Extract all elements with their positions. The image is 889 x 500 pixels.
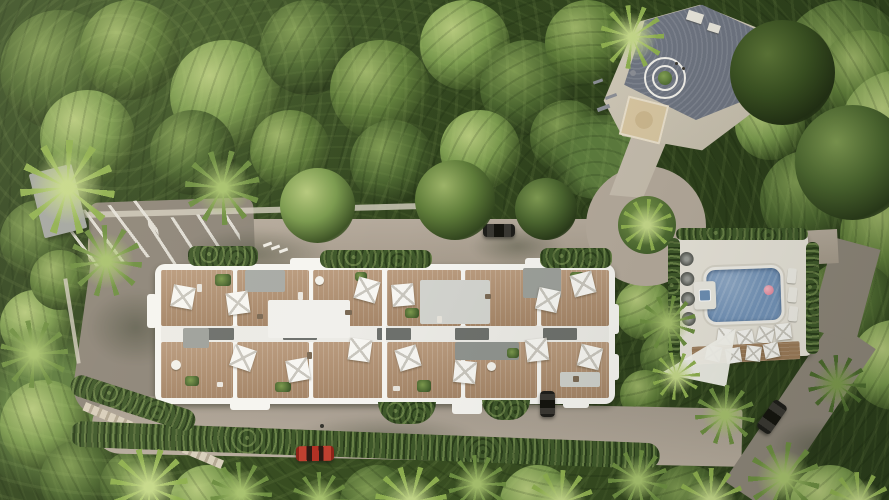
planter <box>507 348 519 358</box>
roof-edge-bump <box>563 398 589 408</box>
umbrella-icon <box>348 338 373 363</box>
sun-lounger <box>788 306 799 322</box>
sun-lounger <box>787 268 798 284</box>
pedestrian <box>675 62 678 65</box>
hedge <box>540 248 612 268</box>
tree-icon <box>730 20 835 125</box>
terrace-furniture <box>257 314 263 319</box>
hedge <box>188 246 258 266</box>
apartment-building-roof <box>155 264 615 404</box>
round-umbrella-icon <box>679 252 693 266</box>
jacuzzi-water <box>699 289 711 301</box>
umbrella-icon <box>226 291 251 316</box>
aerial-render-scene <box>0 0 889 500</box>
umbrella-icon <box>391 283 415 307</box>
umbrella-icon <box>285 357 310 382</box>
terrace-furniture <box>217 382 223 387</box>
planter <box>215 274 231 286</box>
round-table <box>487 362 496 371</box>
terrace-furniture <box>485 294 491 299</box>
corridor-skylight <box>455 328 489 340</box>
roof-edge-bump <box>147 294 157 328</box>
street-lamp <box>320 424 324 428</box>
roof-panel <box>183 328 209 348</box>
umbrella-icon <box>535 287 561 313</box>
red-car <box>296 446 334 462</box>
round-table <box>171 360 181 370</box>
tree-icon <box>280 168 355 243</box>
planter <box>405 308 419 318</box>
entrance-walkway <box>452 398 482 414</box>
terrace-furniture <box>197 284 202 292</box>
round-table <box>315 276 324 285</box>
terrace-furniture <box>437 316 442 323</box>
planter <box>275 382 291 392</box>
playground-equipment <box>630 70 636 76</box>
terrace-furniture <box>298 292 303 300</box>
planter <box>417 380 431 392</box>
sun-lounger <box>787 287 798 303</box>
roof-panel <box>268 300 350 338</box>
roof-panel <box>560 372 600 387</box>
umbrella-icon <box>453 360 477 384</box>
round-umbrella-icon <box>680 272 694 286</box>
pool-hedge <box>676 228 808 240</box>
tree-icon <box>415 160 495 240</box>
parked-dark-car <box>540 391 555 417</box>
ring-tree <box>658 71 672 85</box>
dark-car-top-road <box>483 224 515 237</box>
roof-panel <box>420 280 490 324</box>
corridor-skylight <box>543 328 577 340</box>
pool-hedge <box>806 242 819 354</box>
playground-equipment <box>597 104 611 112</box>
umbrella-icon <box>525 338 550 363</box>
playground-equipment <box>593 78 603 84</box>
building-seam <box>382 264 386 404</box>
terrace-furniture <box>345 310 352 315</box>
planter <box>185 376 199 386</box>
terrace-furniture <box>307 352 312 359</box>
roof-edge-bump <box>230 398 270 410</box>
terrace-furniture <box>573 376 579 382</box>
umbrella-icon <box>763 342 781 360</box>
tree-icon <box>515 178 577 240</box>
roof-panel <box>245 270 285 292</box>
pedestrian <box>682 67 685 70</box>
terrace-furniture <box>393 386 400 391</box>
umbrella-icon <box>170 284 195 309</box>
hedge <box>320 250 432 268</box>
umbrella-icon <box>745 345 762 362</box>
umbrella-icon <box>774 323 792 341</box>
jacuzzi <box>693 281 716 310</box>
terrace-unit <box>161 342 233 398</box>
